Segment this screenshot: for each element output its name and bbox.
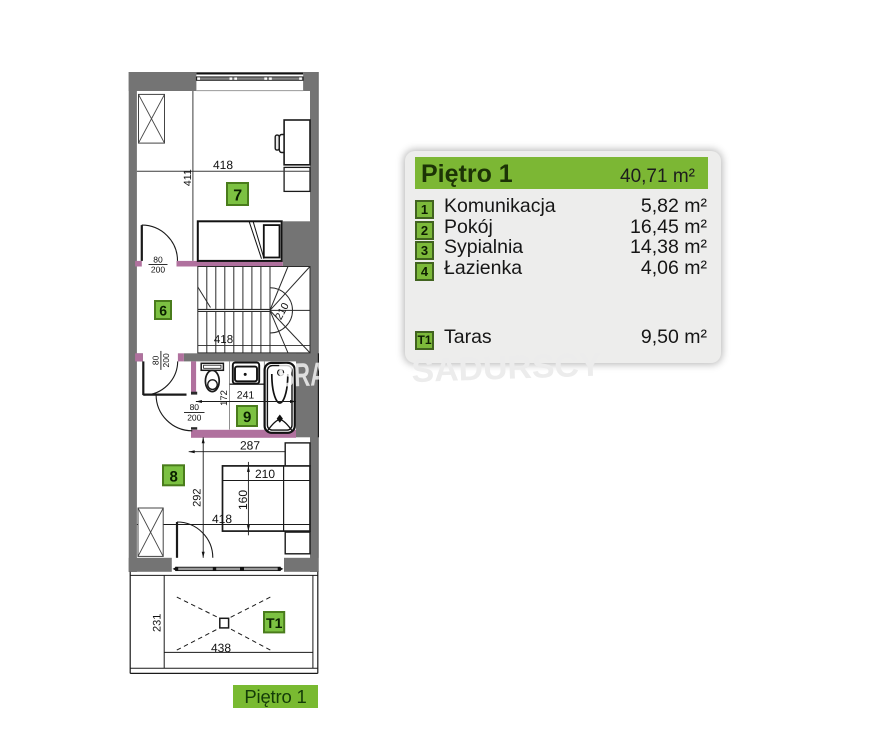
svg-text:6: 6 — [159, 303, 167, 319]
svg-text:411: 411 — [182, 169, 194, 186]
svg-text:418: 418 — [212, 512, 232, 526]
svg-text:241: 241 — [237, 390, 255, 402]
svg-text:8: 8 — [170, 468, 178, 485]
svg-text:7: 7 — [233, 188, 242, 205]
svg-text:80: 80 — [153, 254, 163, 264]
svg-text:418: 418 — [213, 158, 233, 172]
svg-text:200: 200 — [161, 353, 171, 367]
svg-text:438: 438 — [211, 641, 231, 655]
svg-text:T1: T1 — [266, 615, 283, 631]
svg-text:9: 9 — [243, 409, 251, 426]
svg-text:80: 80 — [150, 355, 160, 365]
svg-text:200: 200 — [187, 412, 201, 422]
svg-text:160: 160 — [236, 490, 250, 510]
svg-text:287: 287 — [240, 438, 260, 452]
svg-text:80: 80 — [190, 402, 200, 412]
svg-text:200: 200 — [151, 265, 165, 275]
svg-text:210: 210 — [255, 467, 275, 481]
svg-text:231: 231 — [152, 614, 164, 632]
svg-text:418: 418 — [214, 334, 233, 346]
svg-text:292: 292 — [191, 489, 203, 507]
svg-text:172: 172 — [219, 390, 230, 406]
